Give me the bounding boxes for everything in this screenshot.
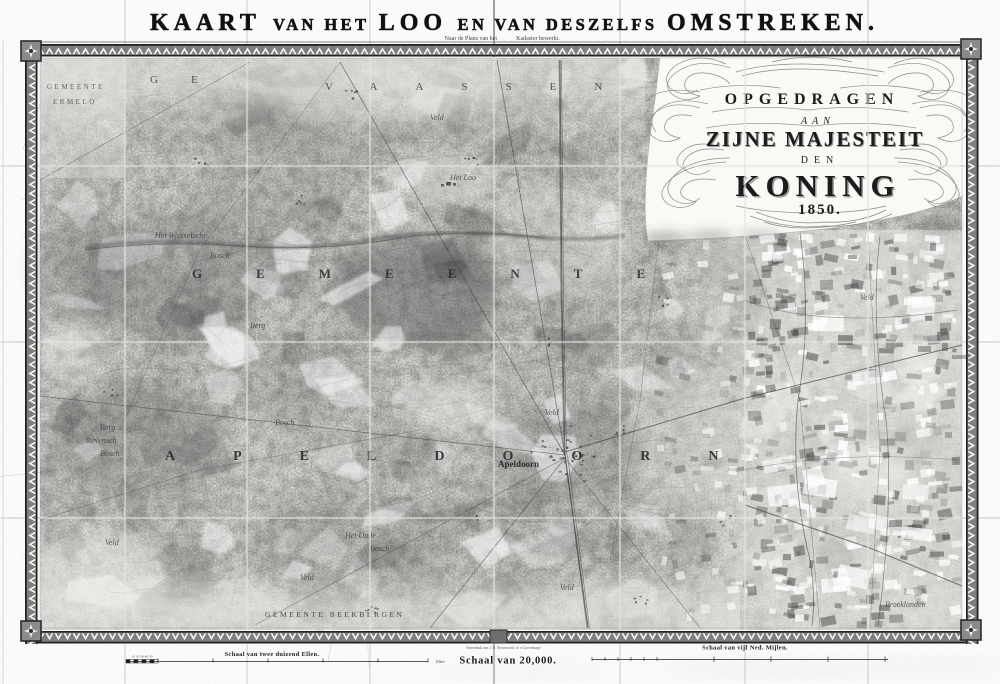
svg-text:APELDOORN: APELDOORN — [165, 449, 776, 464]
svg-text:Naar de Plans van het: Naar de Plans van het — [445, 36, 498, 42]
svg-text:10 20 30 40 50: 10 20 30 40 50 — [132, 655, 153, 659]
svg-text:Het Oude: Het Oude — [344, 531, 376, 540]
svg-text:Het Wiesselsche: Het Wiesselsche — [154, 231, 207, 240]
svg-text:AAN: AAN — [800, 116, 835, 127]
svg-text:Bosch: Bosch — [100, 449, 120, 458]
svg-text:ZIJNE MAJESTEIT: ZIJNE MAJESTEIT — [706, 127, 924, 151]
svg-text:GEMEENTE: GEMEENTE — [192, 266, 699, 281]
svg-text:ERMELO: ERMELO — [53, 98, 97, 106]
svg-text:1850.: 1850. — [798, 202, 842, 218]
svg-text:Ellen: Ellen — [436, 659, 444, 664]
svg-text:Kadaster bewerkt.: Kadaster bewerkt. — [516, 36, 560, 42]
svg-text:GEMEENTE: GEMEENTE — [47, 83, 105, 91]
svg-text:Veld: Veld — [545, 408, 560, 417]
svg-text:Stevensch: Stevensch — [85, 436, 117, 445]
svg-text:DEN: DEN — [801, 155, 840, 166]
svg-text:Berg: Berg — [250, 321, 265, 330]
svg-text:Broeklanden: Broeklanden — [885, 600, 926, 609]
svg-text:VAASSEN: VAASSEN — [325, 81, 640, 93]
svg-text:OPGEDRAGEN: OPGEDRAGEN — [725, 91, 900, 108]
svg-text:Apeldoorn: Apeldoorn — [498, 459, 539, 469]
svg-text:GE: GE — [150, 74, 231, 86]
svg-text:Veld: Veld — [430, 113, 445, 122]
svg-text:KONING: KONING — [735, 168, 900, 203]
svg-text:Bosch: Bosch — [210, 251, 230, 260]
svg-text:Schaal van twee duizend Ellen.: Schaal van twee duizend Ellen. — [225, 651, 320, 658]
svg-text:Veld: Veld — [300, 573, 315, 582]
svg-text:GEMEENTE BEEKBERGEN: GEMEENTE BEEKBERGEN — [265, 610, 404, 619]
svg-text:Veld: Veld — [105, 538, 120, 547]
svg-text:Bosch: Bosch — [370, 544, 390, 553]
svg-text:Schaal van vijf Ned. Mijlen.: Schaal van vijf Ned. Mijlen. — [702, 645, 788, 652]
svg-text:Het Loo: Het Loo — [449, 173, 476, 182]
svg-text:Berg: Berg — [100, 423, 115, 432]
svg-text:Bosch: Bosch — [275, 418, 295, 427]
svg-text:Veld: Veld — [560, 583, 575, 592]
